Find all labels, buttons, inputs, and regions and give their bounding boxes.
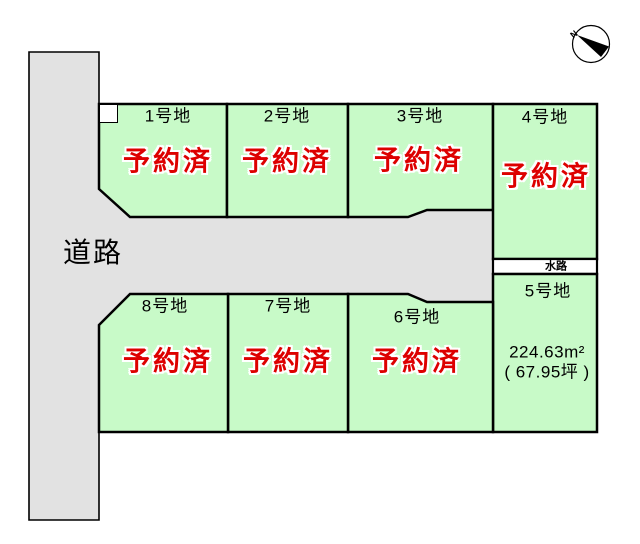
lot-5-area-tsubo: ( 67.95坪 ): [504, 364, 589, 381]
lot-2-number: 2号地: [264, 108, 310, 125]
lot-2-status: 予約済: [242, 149, 332, 176]
lot-6-number: 6号地: [394, 309, 440, 326]
lot-5-number: 5号地: [525, 283, 571, 300]
lot-8-status: 予約済: [123, 349, 213, 376]
lot-7-status: 予約済: [243, 349, 333, 376]
lot-4-number: 4号地: [522, 109, 568, 126]
lot-4-status: 予約済: [501, 164, 591, 191]
lot-6-status: 予約済: [372, 349, 462, 376]
waterway-label: 水路: [545, 262, 567, 273]
lot-1-number: 1号地: [145, 108, 191, 125]
lot-1-corner-notch: [100, 105, 118, 123]
site-plan-drawing: N: [0, 0, 640, 544]
lot-map: N 道路 水路 1号地 予約済 2号地 予約済 3号地 予約済 4号地 予約済 …: [0, 0, 640, 544]
lot-7-number: 7号地: [265, 298, 311, 315]
lot-8-number: 8号地: [142, 298, 188, 315]
road-label: 道路: [63, 239, 123, 267]
lot-1-status: 予約済: [123, 149, 213, 176]
lot-3-status: 予約済: [374, 148, 464, 175]
compass-icon: N: [568, 26, 609, 63]
lot-5-area-m2: 224.63m²: [509, 344, 585, 361]
lot-3-number: 3号地: [397, 108, 443, 125]
